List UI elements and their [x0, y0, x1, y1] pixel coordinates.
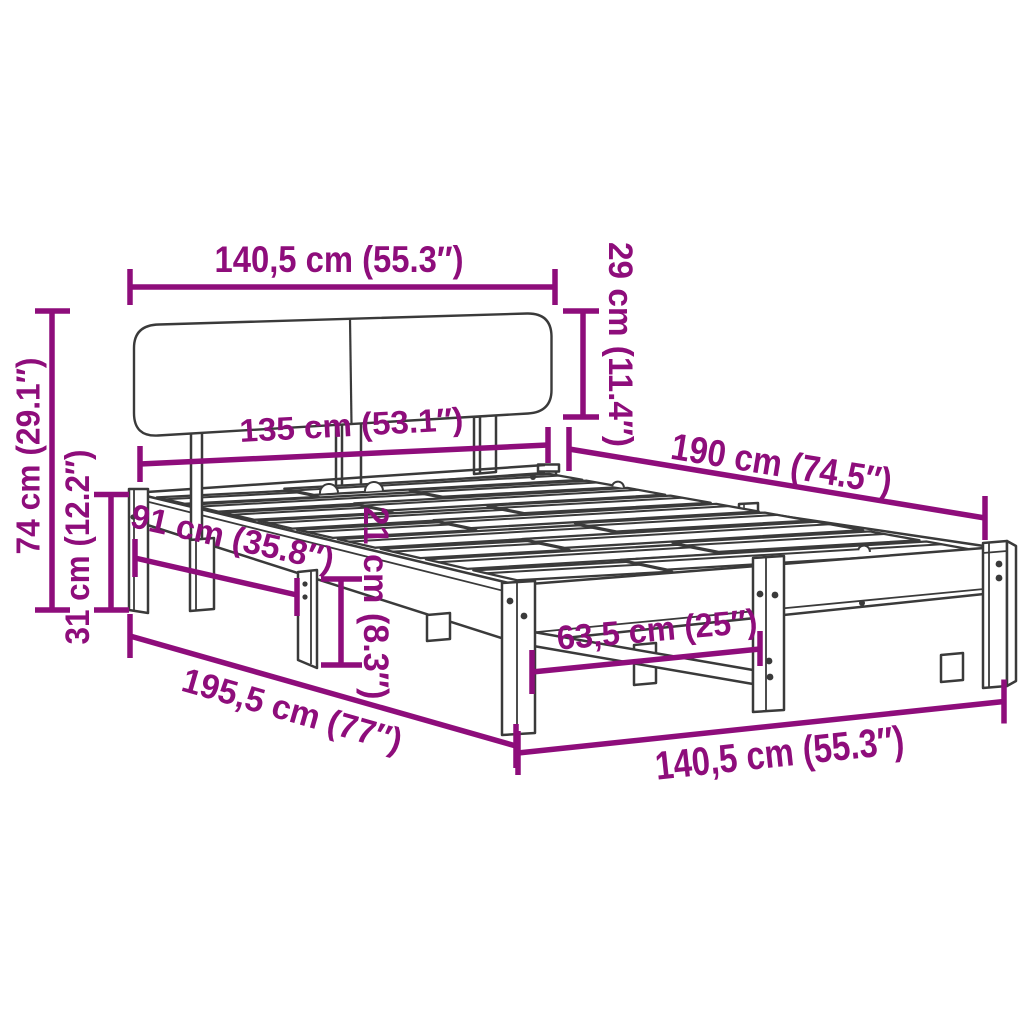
svg-text:140,5 cm (55.3″): 140,5 cm (55.3″) [215, 239, 464, 280]
svg-text:31 cm (12.2″): 31 cm (12.2″) [59, 450, 97, 645]
svg-text:21 cm (8.3″): 21 cm (8.3″) [356, 507, 395, 700]
svg-text:74 cm (29.1″): 74 cm (29.1″) [11, 358, 48, 555]
svg-text:29 cm (11.4″): 29 cm (11.4″) [601, 242, 639, 447]
